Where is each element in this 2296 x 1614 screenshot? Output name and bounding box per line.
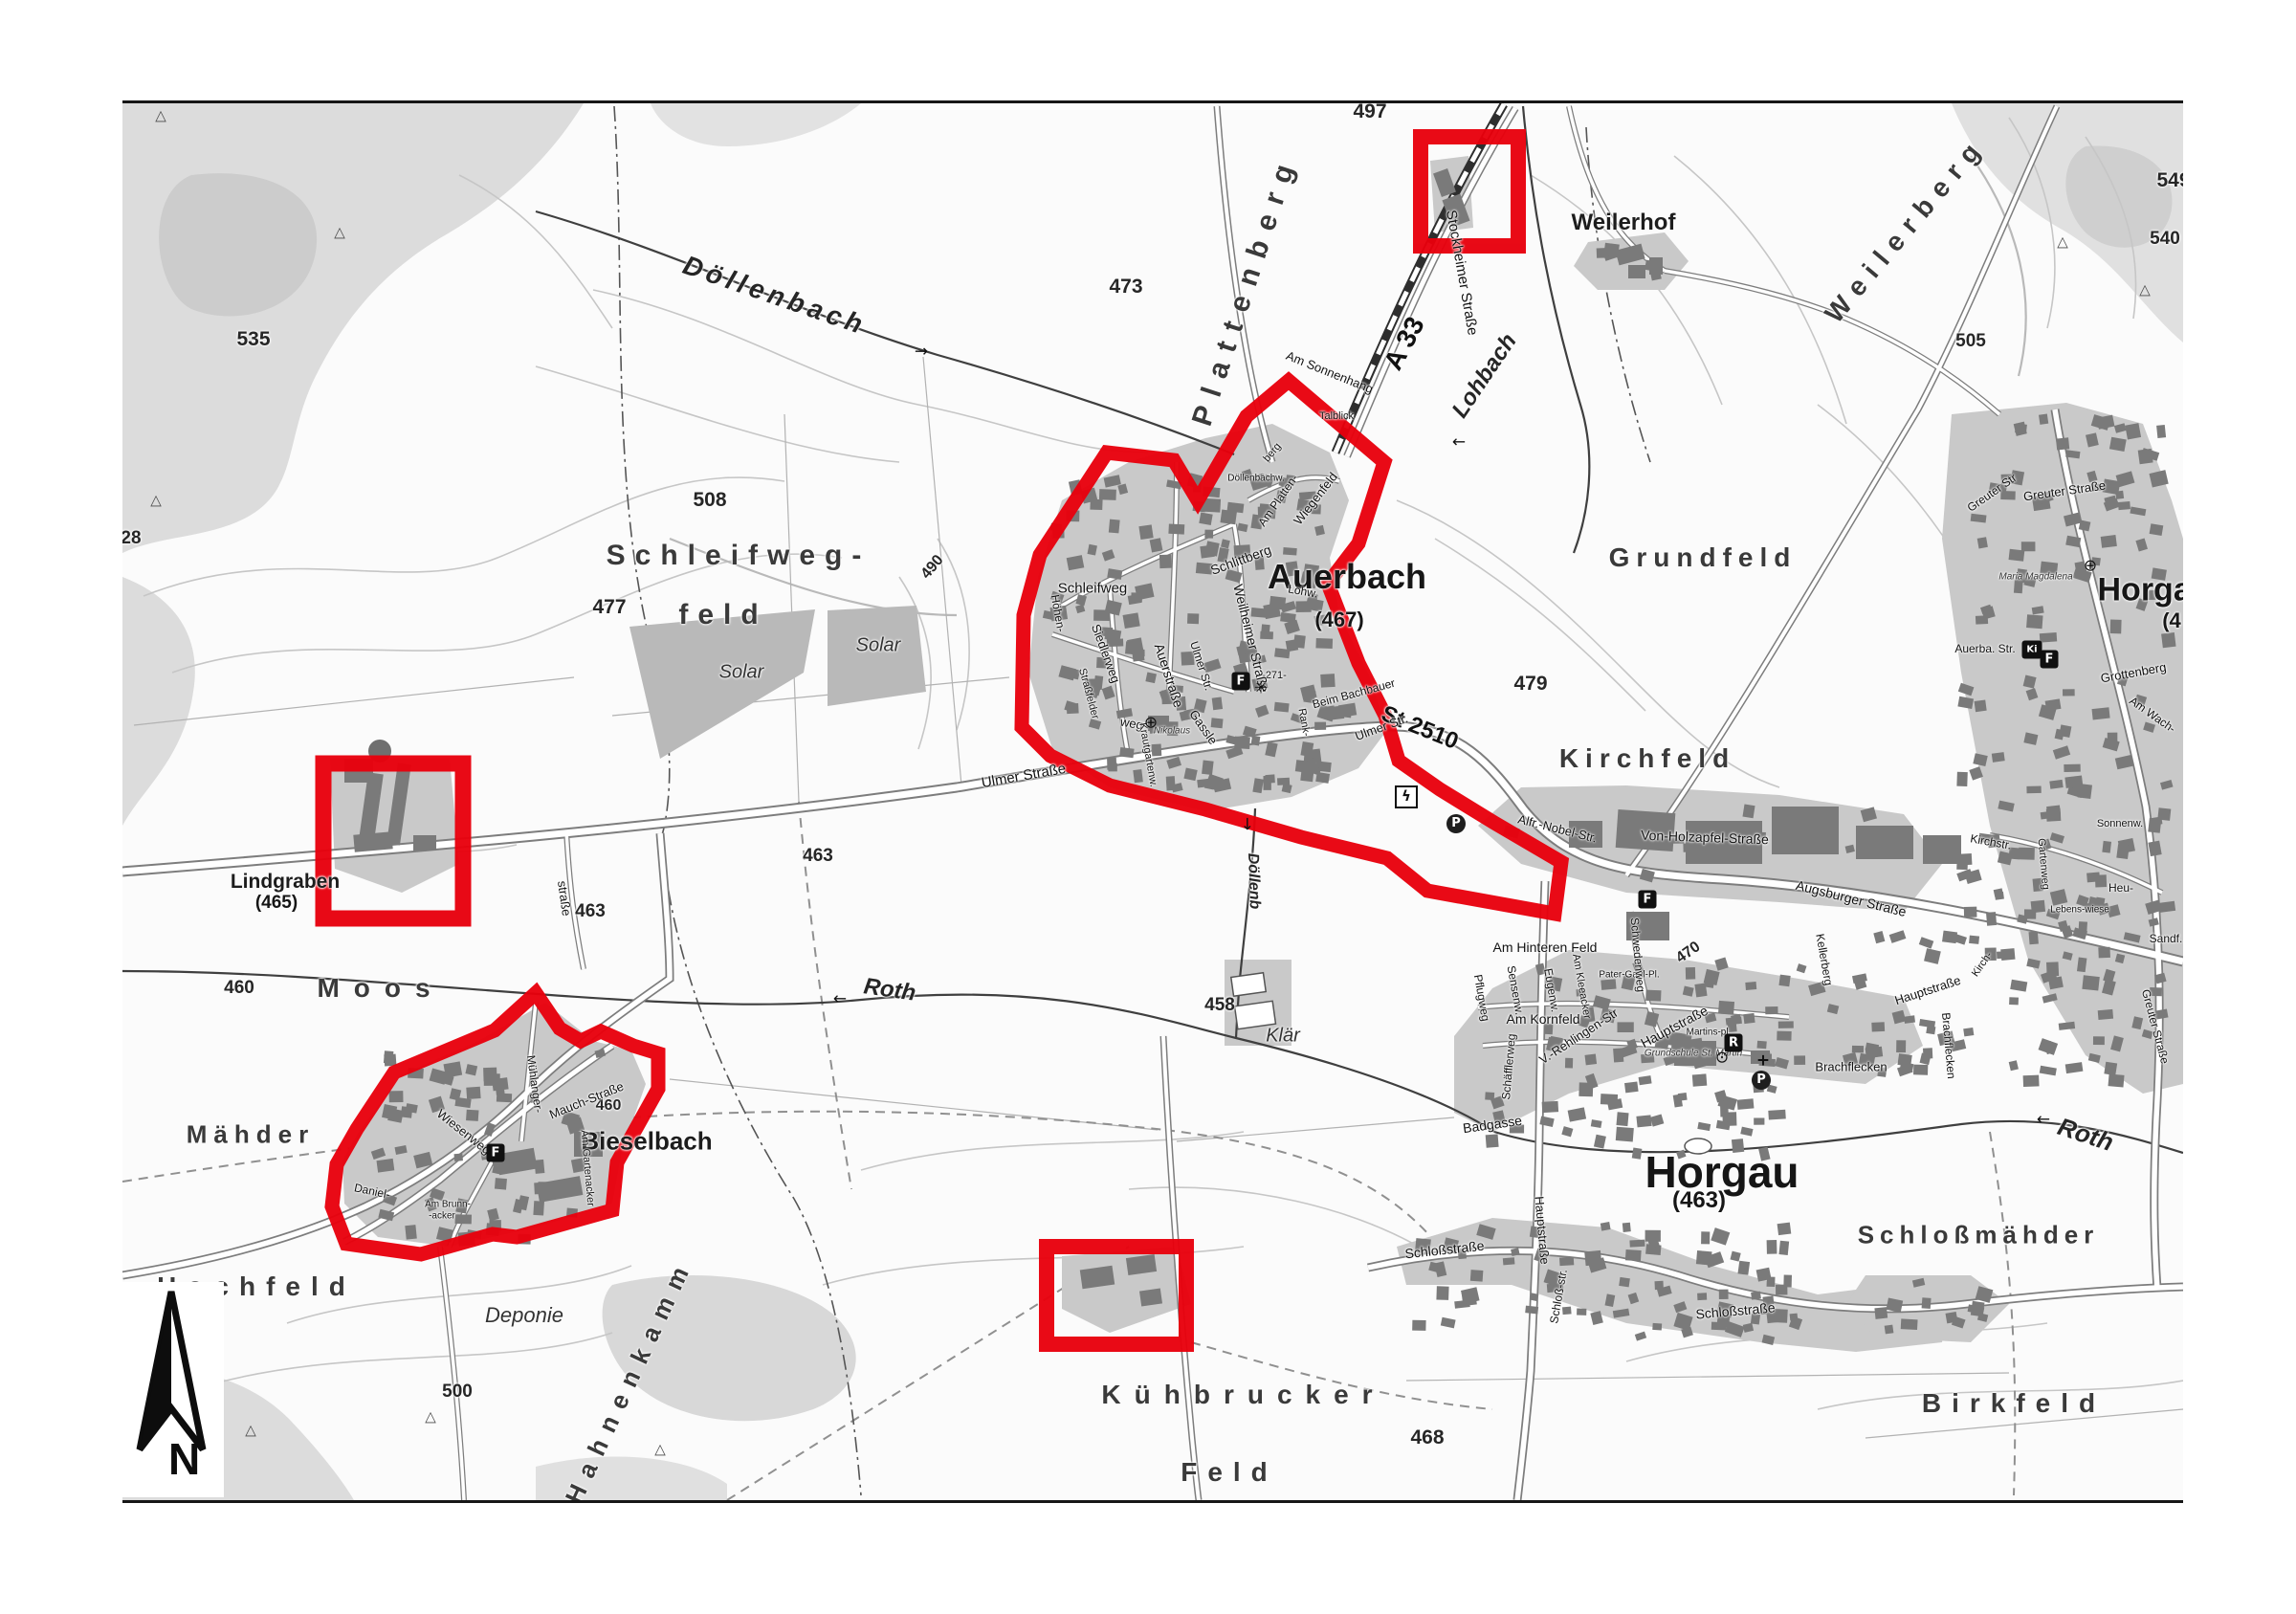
- map-graphics: [122, 103, 2183, 1500]
- north-label: N: [168, 1433, 200, 1485]
- north-arrow: N: [122, 1282, 224, 1497]
- topographic-map: Auerbach(467)Horgau(463)BieselbachHorgau…: [122, 100, 2183, 1503]
- map-screenshot: Auerbach(467)Horgau(463)BieselbachHorgau…: [0, 0, 2296, 1614]
